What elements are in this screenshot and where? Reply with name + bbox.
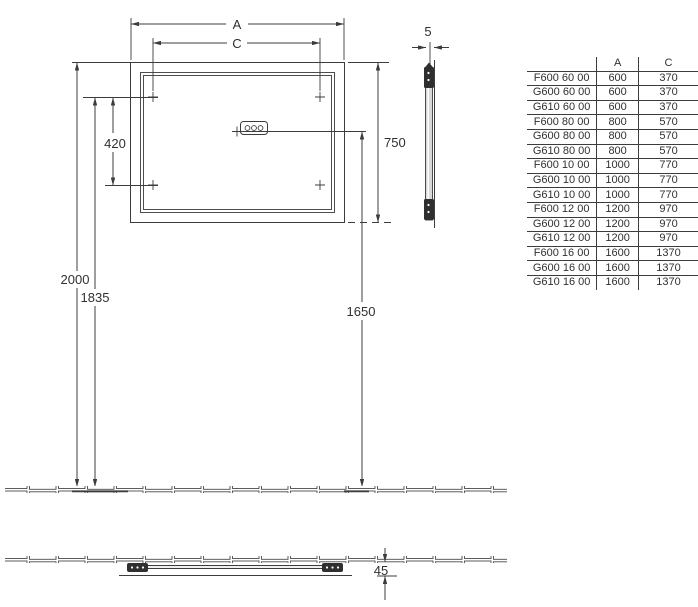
dim-1650-label: 1650 [347, 304, 376, 319]
spec-table-head: AC [527, 57, 698, 71]
table-row: G610 10 001000770 [527, 188, 698, 203]
dim-420-label: 420 [104, 136, 126, 151]
wall-line-plan [5, 556, 507, 563]
model-cell: G610 80 00 [527, 144, 597, 159]
table-row: G600 80 00800570 [527, 129, 698, 144]
dim-a-label: A [233, 17, 242, 32]
value-cell: 370 [639, 86, 698, 101]
value-cell: 1000 [597, 188, 639, 203]
header-row: AC [527, 57, 698, 71]
dim-1835-label: 1835 [81, 290, 110, 305]
table-row: G610 60 00600370 [527, 100, 698, 115]
value-cell: 1370 [639, 246, 698, 261]
model-cell: G600 10 00 [527, 173, 597, 188]
dim-column-header: C [639, 57, 698, 71]
table-row: F600 12 001200970 [527, 202, 698, 217]
value-cell: 800 [597, 144, 639, 159]
table-row: G610 80 00800570 [527, 144, 698, 159]
front-view [131, 63, 345, 223]
model-cell: F600 16 00 [527, 246, 597, 261]
value-cell: 800 [597, 129, 639, 144]
value-cell: 1370 [639, 261, 698, 276]
spec-table: AC F600 60 00600370G600 60 00600370G610 … [527, 57, 698, 290]
value-cell: 600 [597, 71, 639, 86]
value-cell: 1370 [639, 275, 698, 289]
model-cell: G610 12 00 [527, 232, 597, 247]
dim-750-label: 750 [384, 135, 406, 150]
model-cell: F600 60 00 [527, 71, 597, 86]
value-cell: 1600 [597, 261, 639, 276]
model-cell: G600 80 00 [527, 129, 597, 144]
value-cell: 970 [639, 202, 698, 217]
value-cell: 770 [639, 173, 698, 188]
value-cell: 1000 [597, 159, 639, 174]
value-cell: 570 [639, 115, 698, 130]
table-row: F600 60 00600370 [527, 71, 698, 86]
value-cell: 970 [639, 217, 698, 232]
mirror-side-profile [426, 68, 433, 220]
floor-line [5, 486, 507, 493]
side-bracket-bottom [424, 199, 434, 220]
table-row: F600 16 0016001370 [527, 246, 698, 261]
value-cell: 770 [639, 159, 698, 174]
value-cell: 800 [597, 115, 639, 130]
mirror-plan-body [119, 566, 352, 576]
model-cell: G600 60 00 [527, 86, 597, 101]
dim-5-label: 5 [424, 24, 431, 39]
plan-bracket-right [322, 563, 343, 572]
model-cell: G610 60 00 [527, 100, 597, 115]
mirror-installation-drawing: { "colors": { "line": "#3c3c3c", "text":… [0, 0, 698, 607]
value-cell: 1200 [597, 217, 639, 232]
value-cell: 1200 [597, 202, 639, 217]
table-row: G600 12 001200970 [527, 217, 698, 232]
model-cell: F600 10 00 [527, 159, 597, 174]
plan-bracket-left [127, 563, 148, 572]
spec-table-body: F600 60 00600370G600 60 00600370G610 60 … [527, 71, 698, 289]
depth-dimension: 45 [374, 548, 397, 600]
plan-view: 45 [5, 548, 507, 600]
table-row: G600 16 0016001370 [527, 261, 698, 276]
value-cell: 600 [597, 100, 639, 115]
dim-45-label: 45 [374, 563, 388, 578]
value-cell: 1600 [597, 275, 639, 289]
value-cell: 970 [639, 232, 698, 247]
model-cell: F600 80 00 [527, 115, 597, 130]
model-cell: G600 12 00 [527, 217, 597, 232]
value-cell: 770 [639, 188, 698, 203]
model-column-header [527, 57, 597, 71]
value-cell: 1000 [597, 173, 639, 188]
dim-column-header: A [597, 57, 639, 71]
model-cell: G610 10 00 [527, 188, 597, 203]
value-cell: 570 [639, 144, 698, 159]
model-cell: F600 12 00 [527, 202, 597, 217]
dim-c-label: C [232, 36, 241, 51]
value-cell: 1200 [597, 232, 639, 247]
table-row: G600 60 00600370 [527, 86, 698, 101]
model-cell: G600 16 00 [527, 261, 597, 276]
model-cell: G610 16 00 [527, 275, 597, 289]
table-row: G610 16 0016001370 [527, 275, 698, 289]
table-row: F600 10 001000770 [527, 159, 698, 174]
dim-2000-label: 2000 [61, 272, 90, 287]
value-cell: 370 [639, 71, 698, 86]
value-cell: 1600 [597, 246, 639, 261]
mirror-outer-frame [131, 63, 345, 223]
table-row: G610 12 001200970 [527, 232, 698, 247]
table-row: G600 10 001000770 [527, 173, 698, 188]
table-row: F600 80 00800570 [527, 115, 698, 130]
value-cell: 370 [639, 100, 698, 115]
value-cell: 600 [597, 86, 639, 101]
side-view: 5 [412, 24, 449, 228]
value-cell: 570 [639, 129, 698, 144]
side-bracket-top [424, 63, 434, 89]
